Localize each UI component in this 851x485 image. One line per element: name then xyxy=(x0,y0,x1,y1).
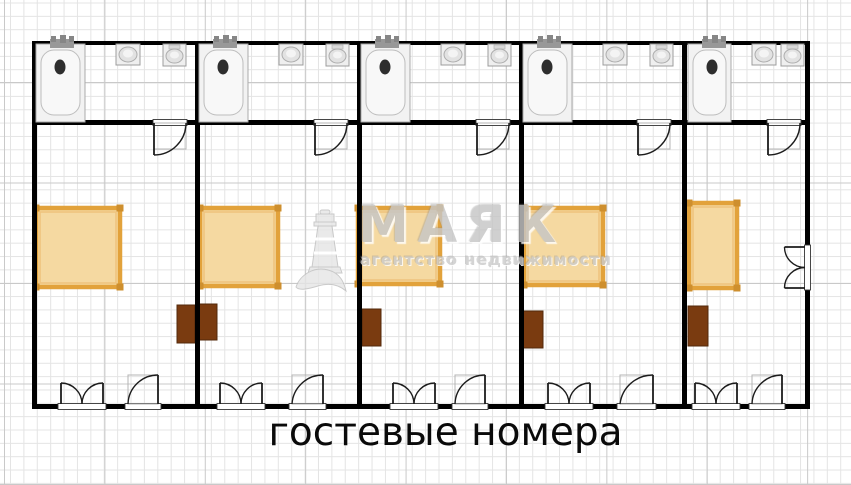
room-2-bed xyxy=(200,208,278,286)
room-1-toilet-highlight xyxy=(170,52,179,59)
room-4-sink-highlight xyxy=(610,50,620,58)
room-3-nightstand xyxy=(362,309,381,346)
room-1-bath-door-frame xyxy=(154,123,186,149)
room-3-bed-corner xyxy=(437,205,444,212)
room-5-double-door-swing xyxy=(716,383,737,404)
room-4-toilet-highlight xyxy=(657,52,666,59)
room-4-nightstand xyxy=(523,311,543,348)
room-1-nightstand xyxy=(177,305,195,343)
room-1-bed-corner xyxy=(117,284,124,291)
room-5-single-door-swing xyxy=(752,375,782,404)
room-5-double-doorway xyxy=(692,404,740,410)
room-3-double-doorway xyxy=(390,404,438,410)
vertical-wall-5 xyxy=(805,41,810,409)
room-1-single-door-swing xyxy=(128,375,158,404)
room-4-bed-corner xyxy=(600,205,607,212)
room-5-bath-door-frame xyxy=(768,123,800,149)
room-4-drain xyxy=(542,60,553,75)
room-5-side-door-swing xyxy=(785,247,806,268)
room-1-bed-corner xyxy=(117,205,124,212)
room-4-single-door-swing xyxy=(620,375,653,404)
room-5-sink-highlight xyxy=(759,50,769,58)
room-3-faucet-knob xyxy=(376,36,381,42)
room-1-bed xyxy=(36,208,120,287)
room-2-faucet-knob xyxy=(232,36,237,42)
room-2-bed-corner xyxy=(275,283,282,290)
room-5-nightstand xyxy=(688,306,708,346)
floorplan-screenshot: МАЯК агентство недвижимости гостевые ном… xyxy=(0,0,851,485)
room-3-double-door-swing xyxy=(393,383,414,404)
room-5-faucet-knob xyxy=(703,36,708,42)
room-2-single-door-swing xyxy=(292,375,323,404)
room-1-bath-door-swing xyxy=(154,123,186,155)
room-2-double-doorway xyxy=(217,404,265,410)
room-1-toilet-tank xyxy=(169,45,180,49)
room-4-toilet-tank xyxy=(656,45,667,49)
room-2-double-door-swing xyxy=(241,383,262,404)
room-3-bed-corner xyxy=(437,281,444,288)
room-4-faucet-knob xyxy=(538,36,543,42)
vertical-wall-4 xyxy=(682,41,687,409)
room-4-bed-corner xyxy=(600,282,607,289)
room-1-faucet-knob xyxy=(69,36,74,42)
room-1-double-doorway xyxy=(58,404,106,410)
room-3-faucet-knob xyxy=(385,35,391,43)
room-5-bed-corner xyxy=(734,285,741,292)
room-2-bath-door-frame xyxy=(315,123,347,149)
room-3-drain xyxy=(380,60,391,75)
room-2-toilet-highlight xyxy=(333,52,342,59)
room-3-bath-door-swing xyxy=(477,123,509,155)
room-2-sink-highlight xyxy=(286,50,296,58)
room-5-toilet-highlight xyxy=(788,52,797,59)
room-1-faucet-knob xyxy=(51,36,56,42)
room-5-faucet-knob xyxy=(721,36,726,42)
room-3-double-door-swing xyxy=(414,383,435,404)
room-2-faucet-knob xyxy=(214,36,219,42)
room-3-bath-door-frame xyxy=(477,123,509,149)
room-1-double-door-swing xyxy=(82,383,103,404)
room-1-faucet-knob xyxy=(60,35,66,43)
room-4-faucet-knob xyxy=(547,35,553,43)
room-5-bed xyxy=(689,203,737,288)
room-4-faucet-knob xyxy=(556,36,561,42)
plan-title: гостевые номера xyxy=(268,410,622,455)
room-2-bath-door-swing xyxy=(315,123,347,155)
room-1-drain xyxy=(55,60,66,75)
room-3-toilet-highlight xyxy=(495,52,504,59)
room-2-bed-corner xyxy=(275,205,282,212)
room-2-toilet-tank xyxy=(332,45,343,49)
room-3-toilet-tank xyxy=(494,45,505,49)
room-5-bath-door-swing xyxy=(768,123,800,155)
room-2-double-door-swing xyxy=(220,383,241,404)
room-3-single-door-swing xyxy=(455,375,485,404)
room-4-double-door-swing xyxy=(569,383,590,404)
room-5-drain xyxy=(707,60,718,75)
room-4-bed xyxy=(524,208,603,285)
room-4-bath-door-frame xyxy=(638,123,670,149)
room-5-toilet-tank xyxy=(787,45,798,49)
room-3-sink-highlight xyxy=(448,50,458,58)
room-5-faucet-knob xyxy=(712,35,718,43)
room-1-sink-highlight xyxy=(123,50,133,58)
room-4-double-door-swing xyxy=(548,383,569,404)
room-5-double-door-swing xyxy=(695,383,716,404)
room-5-bathtub-basin xyxy=(693,50,726,115)
room-2-drain xyxy=(218,60,229,75)
room-3-faucet-knob xyxy=(394,36,399,42)
room-4-double-doorway xyxy=(545,404,593,410)
room-1-double-door-swing xyxy=(61,383,82,404)
room-5-side-door-swing xyxy=(785,268,806,289)
room-4-bath-door-swing xyxy=(638,123,670,155)
room-5-side-doorway xyxy=(805,245,811,290)
room-2-faucet-knob xyxy=(223,35,229,43)
room-3-bed xyxy=(358,208,440,284)
room-5-bed-corner xyxy=(734,200,741,207)
